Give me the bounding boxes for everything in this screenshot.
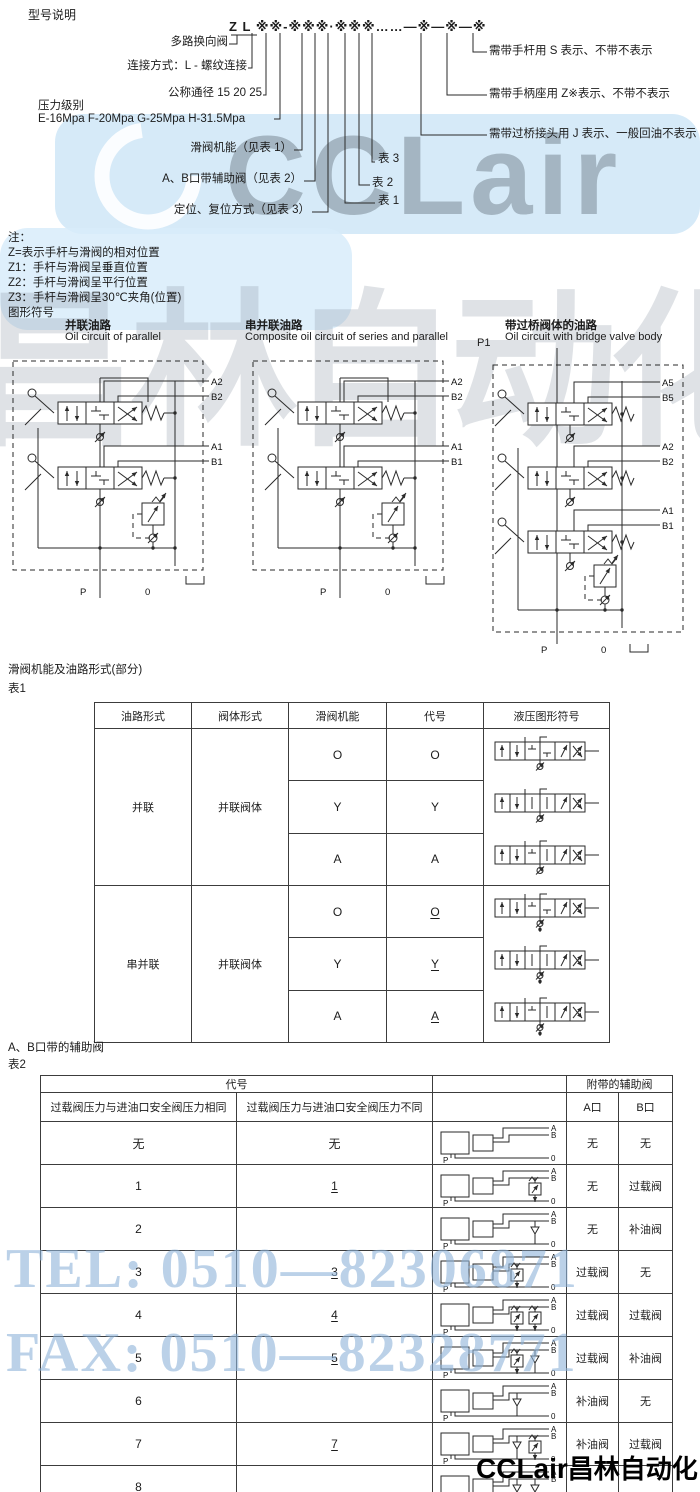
table2-label: 表2 bbox=[8, 1059, 26, 1072]
watermark-fax: FAX: 0510—82328771 bbox=[6, 1325, 578, 1381]
table-ref-2: 表 2 bbox=[372, 177, 393, 190]
t2-b: 过载阀 bbox=[619, 1294, 673, 1337]
t1-header: 代号 bbox=[387, 703, 484, 729]
table-ref-1: 表 1 bbox=[378, 195, 399, 208]
svg-text:B: B bbox=[551, 1217, 556, 1226]
t2-b: 补油阀 bbox=[619, 1208, 673, 1251]
svg-text:B: B bbox=[551, 1432, 556, 1441]
model-label-aux: A、B口带辅助阀（见表 2） bbox=[162, 173, 302, 186]
model-label-handle: 需带手杆用 S 表示、不带不表示 bbox=[489, 45, 653, 58]
hydraulic-symbol bbox=[487, 889, 607, 935]
svg-text:P: P bbox=[320, 587, 326, 598]
svg-text:A2: A2 bbox=[451, 377, 463, 388]
t2-same: 1 bbox=[41, 1165, 237, 1208]
table2-title: A、B口带的辅助阀 bbox=[8, 1042, 104, 1055]
model-label-detent: 定位、复位方式（见表 3） bbox=[174, 204, 310, 217]
t2-diff: 7 bbox=[237, 1423, 433, 1466]
footer-logo: CCLair昌林自动化 bbox=[476, 1449, 698, 1486]
table1-label: 表1 bbox=[8, 683, 26, 696]
t2-same: 6 bbox=[41, 1380, 237, 1423]
t1-code: A bbox=[387, 990, 484, 1042]
model-label-connection: 连接方式：L - 螺纹连接 bbox=[127, 60, 247, 73]
notes-block: 注： Z=表示手杆与滑阀的相对位置 Z1：手杆与滑阀呈垂直位置 Z2：手杆与滑阀… bbox=[8, 231, 181, 321]
t1-func: A bbox=[289, 990, 387, 1042]
svg-text:B5: B5 bbox=[662, 393, 674, 404]
hydraulic-symbol bbox=[487, 836, 607, 882]
t2-header-blank bbox=[433, 1093, 567, 1122]
hydraulic-symbol: AB0P bbox=[435, 1165, 564, 1207]
t1-code: O bbox=[387, 886, 484, 938]
t2-a: 无 bbox=[567, 1165, 619, 1208]
t2-b: 无 bbox=[619, 1122, 673, 1165]
svg-text:B1: B1 bbox=[211, 457, 223, 468]
note-line: Z2：手杆与滑阀呈平行位置 bbox=[8, 276, 181, 291]
notes-heading: 注： bbox=[8, 231, 181, 246]
svg-text:A1: A1 bbox=[211, 442, 223, 453]
t1-code: O bbox=[387, 729, 484, 781]
t1-func: Y bbox=[289, 781, 387, 833]
svg-text:B: B bbox=[551, 1131, 556, 1140]
t2-same: 无 bbox=[41, 1122, 237, 1165]
svg-text:A2: A2 bbox=[662, 442, 674, 453]
hydraulic-symbol: AB0P bbox=[435, 1122, 564, 1164]
t2-header-aux: 附带的辅助阀 bbox=[567, 1076, 673, 1093]
t1-header: 油路形式 bbox=[95, 703, 192, 729]
svg-text:B: B bbox=[551, 1174, 556, 1183]
datasheet-page: CCLair 昌林自动化 型号说明 Z L ※※-※※※·※※※……—※—※—※… bbox=[0, 0, 700, 1492]
t1-symbols-series-parallel bbox=[484, 886, 610, 1043]
svg-text:B2: B2 bbox=[662, 457, 674, 468]
model-label-handle-seat: 需带手柄座用 Z※表示、不带不表示 bbox=[489, 88, 670, 101]
t2-symbol: AB0P bbox=[433, 1380, 567, 1423]
t2-header-b: B口 bbox=[619, 1093, 673, 1122]
t1-func: O bbox=[289, 729, 387, 781]
t2-b: 无 bbox=[619, 1251, 673, 1294]
svg-text:A1: A1 bbox=[451, 442, 463, 453]
t2-b: 无 bbox=[619, 1380, 673, 1423]
t2-b: 补油阀 bbox=[619, 1337, 673, 1380]
t1-code: A bbox=[387, 833, 484, 885]
t1-body: 并联阀体 bbox=[192, 729, 289, 886]
svg-text:B1: B1 bbox=[662, 521, 674, 532]
pressure-line2: E-16Mpa F-20Mpa G-25Mpa H-31.5Mpa bbox=[38, 113, 245, 126]
t1-code: Y bbox=[387, 938, 484, 990]
t1-header: 阀体形式 bbox=[192, 703, 289, 729]
svg-text:B2: B2 bbox=[211, 392, 223, 403]
note-line: Z3：手杆与滑阀呈30℃夹角(位置) bbox=[8, 291, 181, 306]
svg-text:A1: A1 bbox=[662, 506, 674, 517]
circuit3-title-en: Oil circuit with bridge valve body bbox=[505, 331, 662, 343]
model-label-spool: 滑阀机能（见表 1） bbox=[190, 142, 292, 155]
t1-header: 滑阀机能 bbox=[289, 703, 387, 729]
t1-code: Y bbox=[387, 781, 484, 833]
spool-function-table: 油路形式 阀体形式 滑阀机能 代号 液压图形符号 并联 并联阀体 O O Y Y bbox=[94, 702, 610, 1043]
t2-diff: 无 bbox=[237, 1122, 433, 1165]
svg-text:P: P bbox=[443, 1457, 448, 1465]
t1-circuit: 并联 bbox=[95, 729, 192, 886]
table2-row: 11AB0P无过载阀 bbox=[41, 1165, 673, 1208]
svg-text:B1: B1 bbox=[451, 457, 463, 468]
t1-symbols-parallel bbox=[484, 729, 610, 886]
t2-diff: 1 bbox=[237, 1165, 433, 1208]
table1-header-row: 油路形式 阀体形式 滑阀机能 代号 液压图形符号 bbox=[95, 703, 610, 729]
t2-b: 过载阀 bbox=[619, 1165, 673, 1208]
svg-text:B: B bbox=[551, 1389, 556, 1398]
svg-text:P: P bbox=[541, 645, 547, 656]
t1-header: 液压图形符号 bbox=[484, 703, 610, 729]
svg-text:0: 0 bbox=[551, 1197, 556, 1206]
table1-row: 并联 并联阀体 O O bbox=[95, 729, 610, 781]
table2-header-row2: 过载阀压力与进油口安全阀压力相同 过载阀压力与进油口安全阀压力不同 A口 B口 bbox=[41, 1093, 673, 1122]
hydraulic-symbol bbox=[487, 732, 607, 778]
model-label-pressure: 压力级别 E-16Mpa F-20Mpa G-25Mpa H-31.5Mpa bbox=[38, 100, 245, 126]
t2-diff bbox=[237, 1380, 433, 1423]
svg-text:0: 0 bbox=[145, 587, 150, 598]
table2-header-row1: 代号 附带的辅助阀 bbox=[41, 1076, 673, 1093]
t2-header-a: A口 bbox=[567, 1093, 619, 1122]
footer-brand: CCLair bbox=[476, 1453, 568, 1484]
svg-text:P: P bbox=[443, 1414, 448, 1422]
svg-text:A2: A2 bbox=[211, 377, 223, 388]
t2-symbol: AB0P bbox=[433, 1165, 567, 1208]
note-line: Z1：手杆与滑阀呈垂直位置 bbox=[8, 261, 181, 276]
t2-same: 8 bbox=[41, 1466, 237, 1492]
model-label-bore: 公称通径 15 20 25 bbox=[168, 87, 262, 100]
t2-header-diff: 过载阀压力与进油口安全阀压力不同 bbox=[237, 1093, 433, 1122]
watermark-tel: TEL: 0510—82306871 bbox=[6, 1241, 579, 1297]
svg-text:P: P bbox=[443, 1199, 448, 1207]
svg-text:0: 0 bbox=[551, 1412, 556, 1421]
svg-text:P: P bbox=[80, 587, 86, 598]
model-label-bridge-joint: 需带过桥接头用 J 表示、一般回油不表示 bbox=[489, 128, 697, 141]
t2-header-code: 代号 bbox=[41, 1076, 433, 1093]
t1-circuit: 串并联 bbox=[95, 886, 192, 1043]
svg-text:B2: B2 bbox=[451, 392, 463, 403]
t2-symbol: AB0P bbox=[433, 1122, 567, 1165]
t2-a: 补油阀 bbox=[567, 1380, 619, 1423]
t2-diff bbox=[237, 1466, 433, 1492]
t1-func: O bbox=[289, 886, 387, 938]
svg-text:0: 0 bbox=[551, 1154, 556, 1163]
t1-func: Y bbox=[289, 938, 387, 990]
note-line: Z=表示手杆与滑阀的相对位置 bbox=[8, 246, 181, 261]
svg-text:P: P bbox=[443, 1156, 448, 1164]
t2-same: 7 bbox=[41, 1423, 237, 1466]
t1-body: 并联阀体 bbox=[192, 886, 289, 1043]
footer-brand-cn: 昌林自动化 bbox=[568, 1454, 698, 1484]
hydraulic-symbol: AB0P bbox=[435, 1380, 564, 1422]
table1-title: 滑阀机能及油路形式(部分) bbox=[8, 664, 142, 677]
table-ref-3: 表 3 bbox=[378, 153, 399, 166]
hydraulic-circuit-diagrams: A2B2A1B1P0A2B2A1B1P0A5B5A2B2A1B1P0 bbox=[0, 348, 700, 660]
t2-header-blank bbox=[433, 1076, 567, 1093]
hydraulic-symbol bbox=[487, 993, 607, 1039]
t2-header-same: 过载阀压力与进油口安全阀压力相同 bbox=[41, 1093, 237, 1122]
table2-row: 6AB0P补油阀无 bbox=[41, 1380, 673, 1423]
circuit1-title-en: Oil circuit of parallel bbox=[65, 331, 161, 343]
hydraulic-symbol bbox=[487, 941, 607, 987]
table1-row: 串并联 并联阀体 O O bbox=[95, 886, 610, 938]
circuit2-title-en: Composite oil circuit of series and para… bbox=[245, 331, 448, 343]
svg-text:A5: A5 bbox=[662, 378, 674, 389]
svg-text:B: B bbox=[551, 1303, 556, 1312]
svg-text:0: 0 bbox=[601, 645, 606, 656]
table2-row: 无无AB0P无无 bbox=[41, 1122, 673, 1165]
svg-text:0: 0 bbox=[385, 587, 390, 598]
model-label-valve: 多路换向阀 bbox=[171, 36, 229, 49]
t2-a: 无 bbox=[567, 1122, 619, 1165]
pressure-line1: 压力级别 bbox=[38, 100, 245, 113]
hydraulic-symbol bbox=[487, 784, 607, 830]
t1-func: A bbox=[289, 833, 387, 885]
